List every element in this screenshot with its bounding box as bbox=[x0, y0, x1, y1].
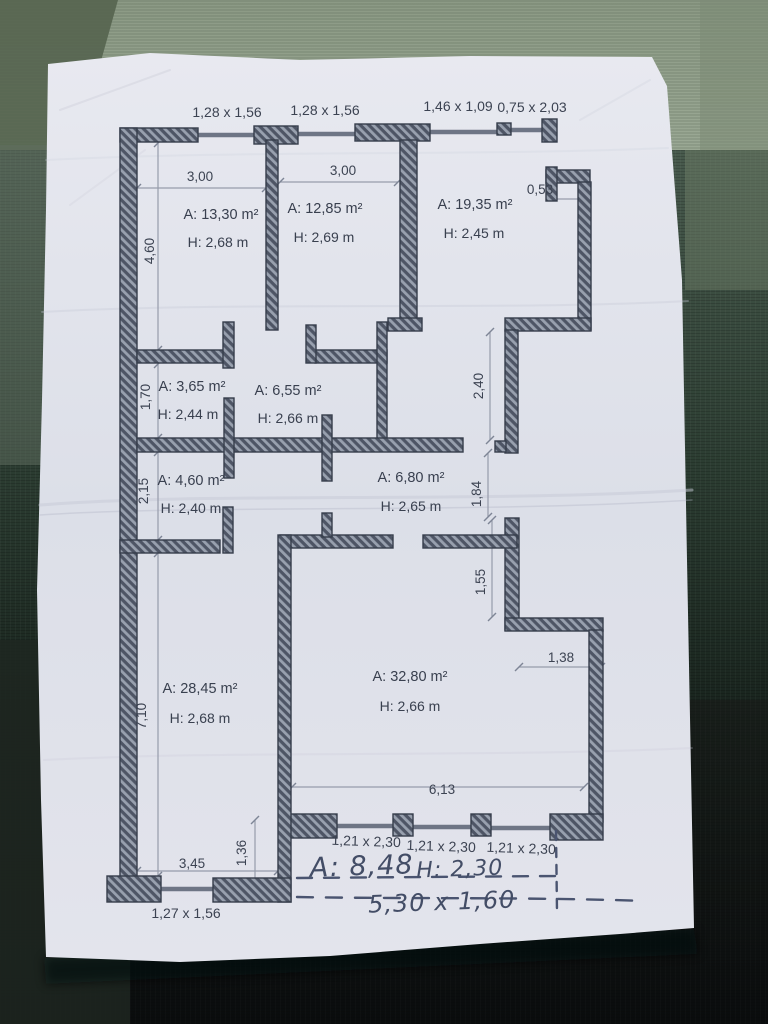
dim-left-mid1: 1,70 bbox=[138, 384, 153, 410]
room-bottom-right-area: A: 32,80 m² bbox=[373, 669, 448, 685]
room-top-right-area: A: 19,35 m² bbox=[438, 197, 513, 213]
dim-left-bottom: 7,10 bbox=[134, 703, 149, 729]
room-bottom-left-area: A: 28,45 m² bbox=[163, 681, 238, 697]
dim-bottom-left-width: 3,45 bbox=[179, 856, 205, 871]
dim-right-top: 2,40 bbox=[471, 373, 486, 399]
bottom-left-window-label: 1,27 x 1,56 bbox=[151, 905, 220, 921]
dim-room1-width: 3,00 bbox=[187, 169, 213, 184]
room-small-left-2-area: A: 4,60 m² bbox=[158, 473, 225, 489]
room-top-left-height: H: 2,68 m bbox=[188, 234, 249, 250]
bottom-window-label-2: 1,21 x 2,30 bbox=[406, 837, 476, 855]
balcony-size-handwritten: 5,30 x 1,60 bbox=[368, 885, 516, 918]
room-small-left-height: H: 2,44 m bbox=[158, 406, 219, 422]
top-window-label-2: 1,28 x 1,56 bbox=[290, 102, 359, 118]
hallway-upper-area: A: 6,55 m² bbox=[255, 383, 322, 399]
balcony-height-handwritten: H: 2,30 bbox=[416, 855, 504, 883]
bottom-window-label-1: 1,21 x 2,30 bbox=[331, 832, 401, 850]
room-bottom-left-height: H: 2,68 m bbox=[170, 710, 231, 726]
hallway-lower-area: A: 6,80 m² bbox=[378, 470, 445, 486]
bottom-window-label-3: 1,21 x 2,30 bbox=[486, 839, 556, 857]
dim-big-room-width: 6,13 bbox=[429, 782, 455, 797]
dim-bottom-gap: 1,36 bbox=[234, 840, 249, 866]
dim-left-mid2: 2,15 bbox=[136, 478, 151, 504]
room-small-left-area: A: 3,65 m² bbox=[159, 379, 226, 395]
room-small-left-2-height: H: 2,40 m bbox=[161, 500, 222, 516]
room-top-left-area: A: 13,30 m² bbox=[184, 207, 259, 223]
hallway-lower-height: H: 2,65 m bbox=[381, 498, 442, 514]
room-bottom-right-height: H: 2,66 m bbox=[380, 698, 441, 714]
dim-room2-width: 3,00 bbox=[330, 163, 356, 178]
dim-niche: 0,53 bbox=[527, 182, 553, 197]
top-window-label-3: 1,46 x 1,09 bbox=[423, 98, 492, 114]
dim-right-mid1: 1,84 bbox=[469, 480, 484, 507]
room-top-middle-height: H: 2,69 m bbox=[294, 229, 355, 245]
floor-plan-photo-svg: 1,28 x 1,56 1,28 x 1,56 1,46 x 1,09 0,75… bbox=[0, 0, 768, 1024]
dim-right-mid2: 1,55 bbox=[473, 569, 488, 595]
hallway-upper-height: H: 2,66 m bbox=[258, 410, 319, 426]
dim-left-top: 4,60 bbox=[142, 238, 157, 264]
balcony-area-handwritten: A: 8,48 bbox=[307, 849, 414, 884]
top-window-label-1: 1,28 x 1,56 bbox=[192, 104, 261, 120]
dim-step-width: 1,38 bbox=[548, 650, 574, 665]
top-window-label-4: 0,75 x 2,03 bbox=[497, 99, 566, 115]
room-top-right-height: H: 2,45 m bbox=[444, 225, 505, 241]
room-top-middle-area: A: 12,85 m² bbox=[288, 201, 363, 217]
photo-of-floor-plan: 1,28 x 1,56 1,28 x 1,56 1,46 x 1,09 0,75… bbox=[0, 0, 768, 1024]
